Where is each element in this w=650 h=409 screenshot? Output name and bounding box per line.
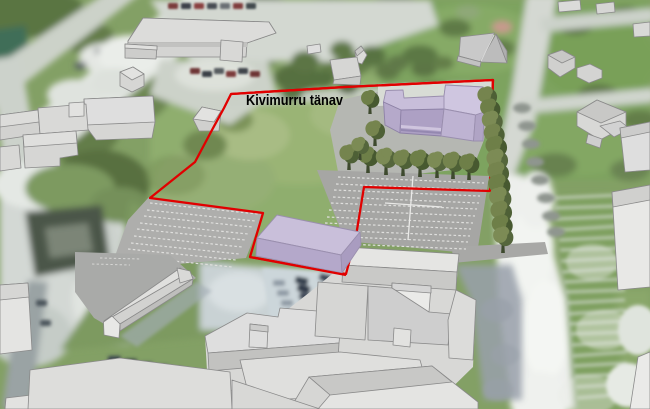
- svg-text:Kivimurru tänav: Kivimurru tänav: [246, 92, 344, 109]
